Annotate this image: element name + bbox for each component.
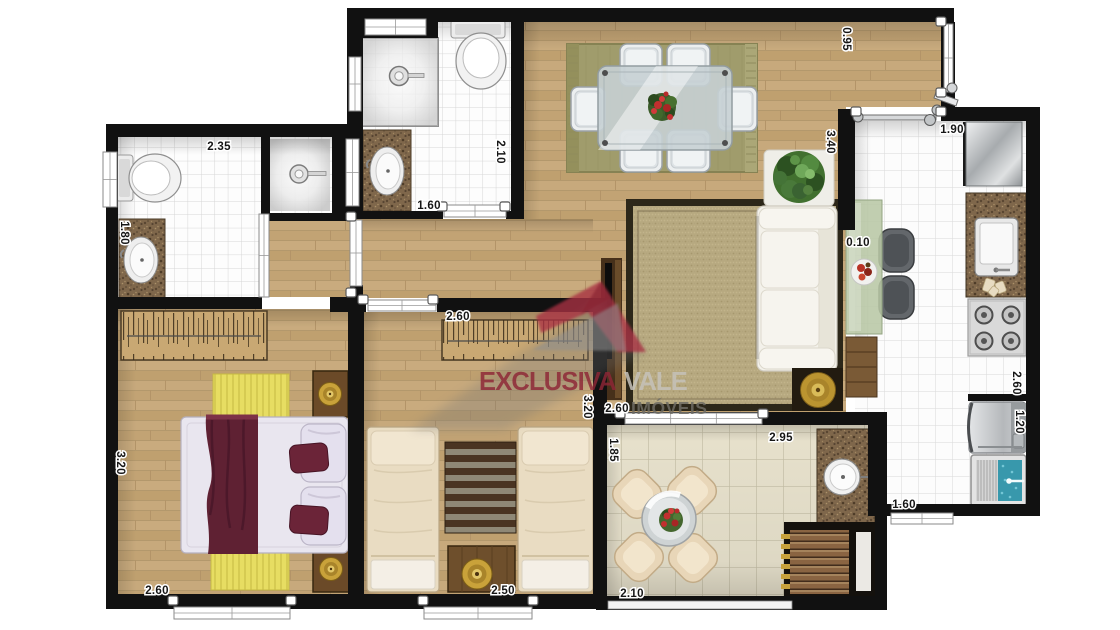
svg-text:2.60: 2.60	[605, 403, 629, 415]
svg-text:2.60: 2.60	[145, 585, 169, 597]
svg-text:1.80: 1.80	[118, 221, 130, 245]
svg-text:2.10: 2.10	[494, 140, 506, 164]
svg-text:0.10: 0.10	[846, 237, 870, 249]
svg-text:2.60: 2.60	[1010, 371, 1022, 395]
svg-text:VALE: VALE	[624, 368, 688, 396]
svg-text:1.90: 1.90	[940, 124, 964, 136]
svg-text:2.60: 2.60	[446, 311, 470, 323]
svg-text:2.50: 2.50	[491, 585, 515, 597]
svg-text:1.60: 1.60	[417, 200, 441, 212]
svg-text:1.85: 1.85	[607, 438, 619, 462]
svg-text:0.95: 0.95	[840, 27, 852, 51]
svg-text:2.95: 2.95	[769, 432, 793, 444]
svg-text:2.35: 2.35	[207, 141, 231, 153]
svg-text:3.40: 3.40	[824, 130, 836, 154]
svg-text:3.20: 3.20	[114, 451, 126, 475]
svg-text:3.20: 3.20	[581, 395, 593, 419]
svg-text:IMÓVEIS: IMÓVEIS	[631, 397, 707, 418]
svg-text:EXCLUSIVA: EXCLUSIVA	[479, 368, 616, 396]
svg-text:1.60: 1.60	[892, 499, 916, 511]
svg-text:1.20: 1.20	[1013, 410, 1025, 434]
svg-text:2.10: 2.10	[620, 588, 644, 600]
